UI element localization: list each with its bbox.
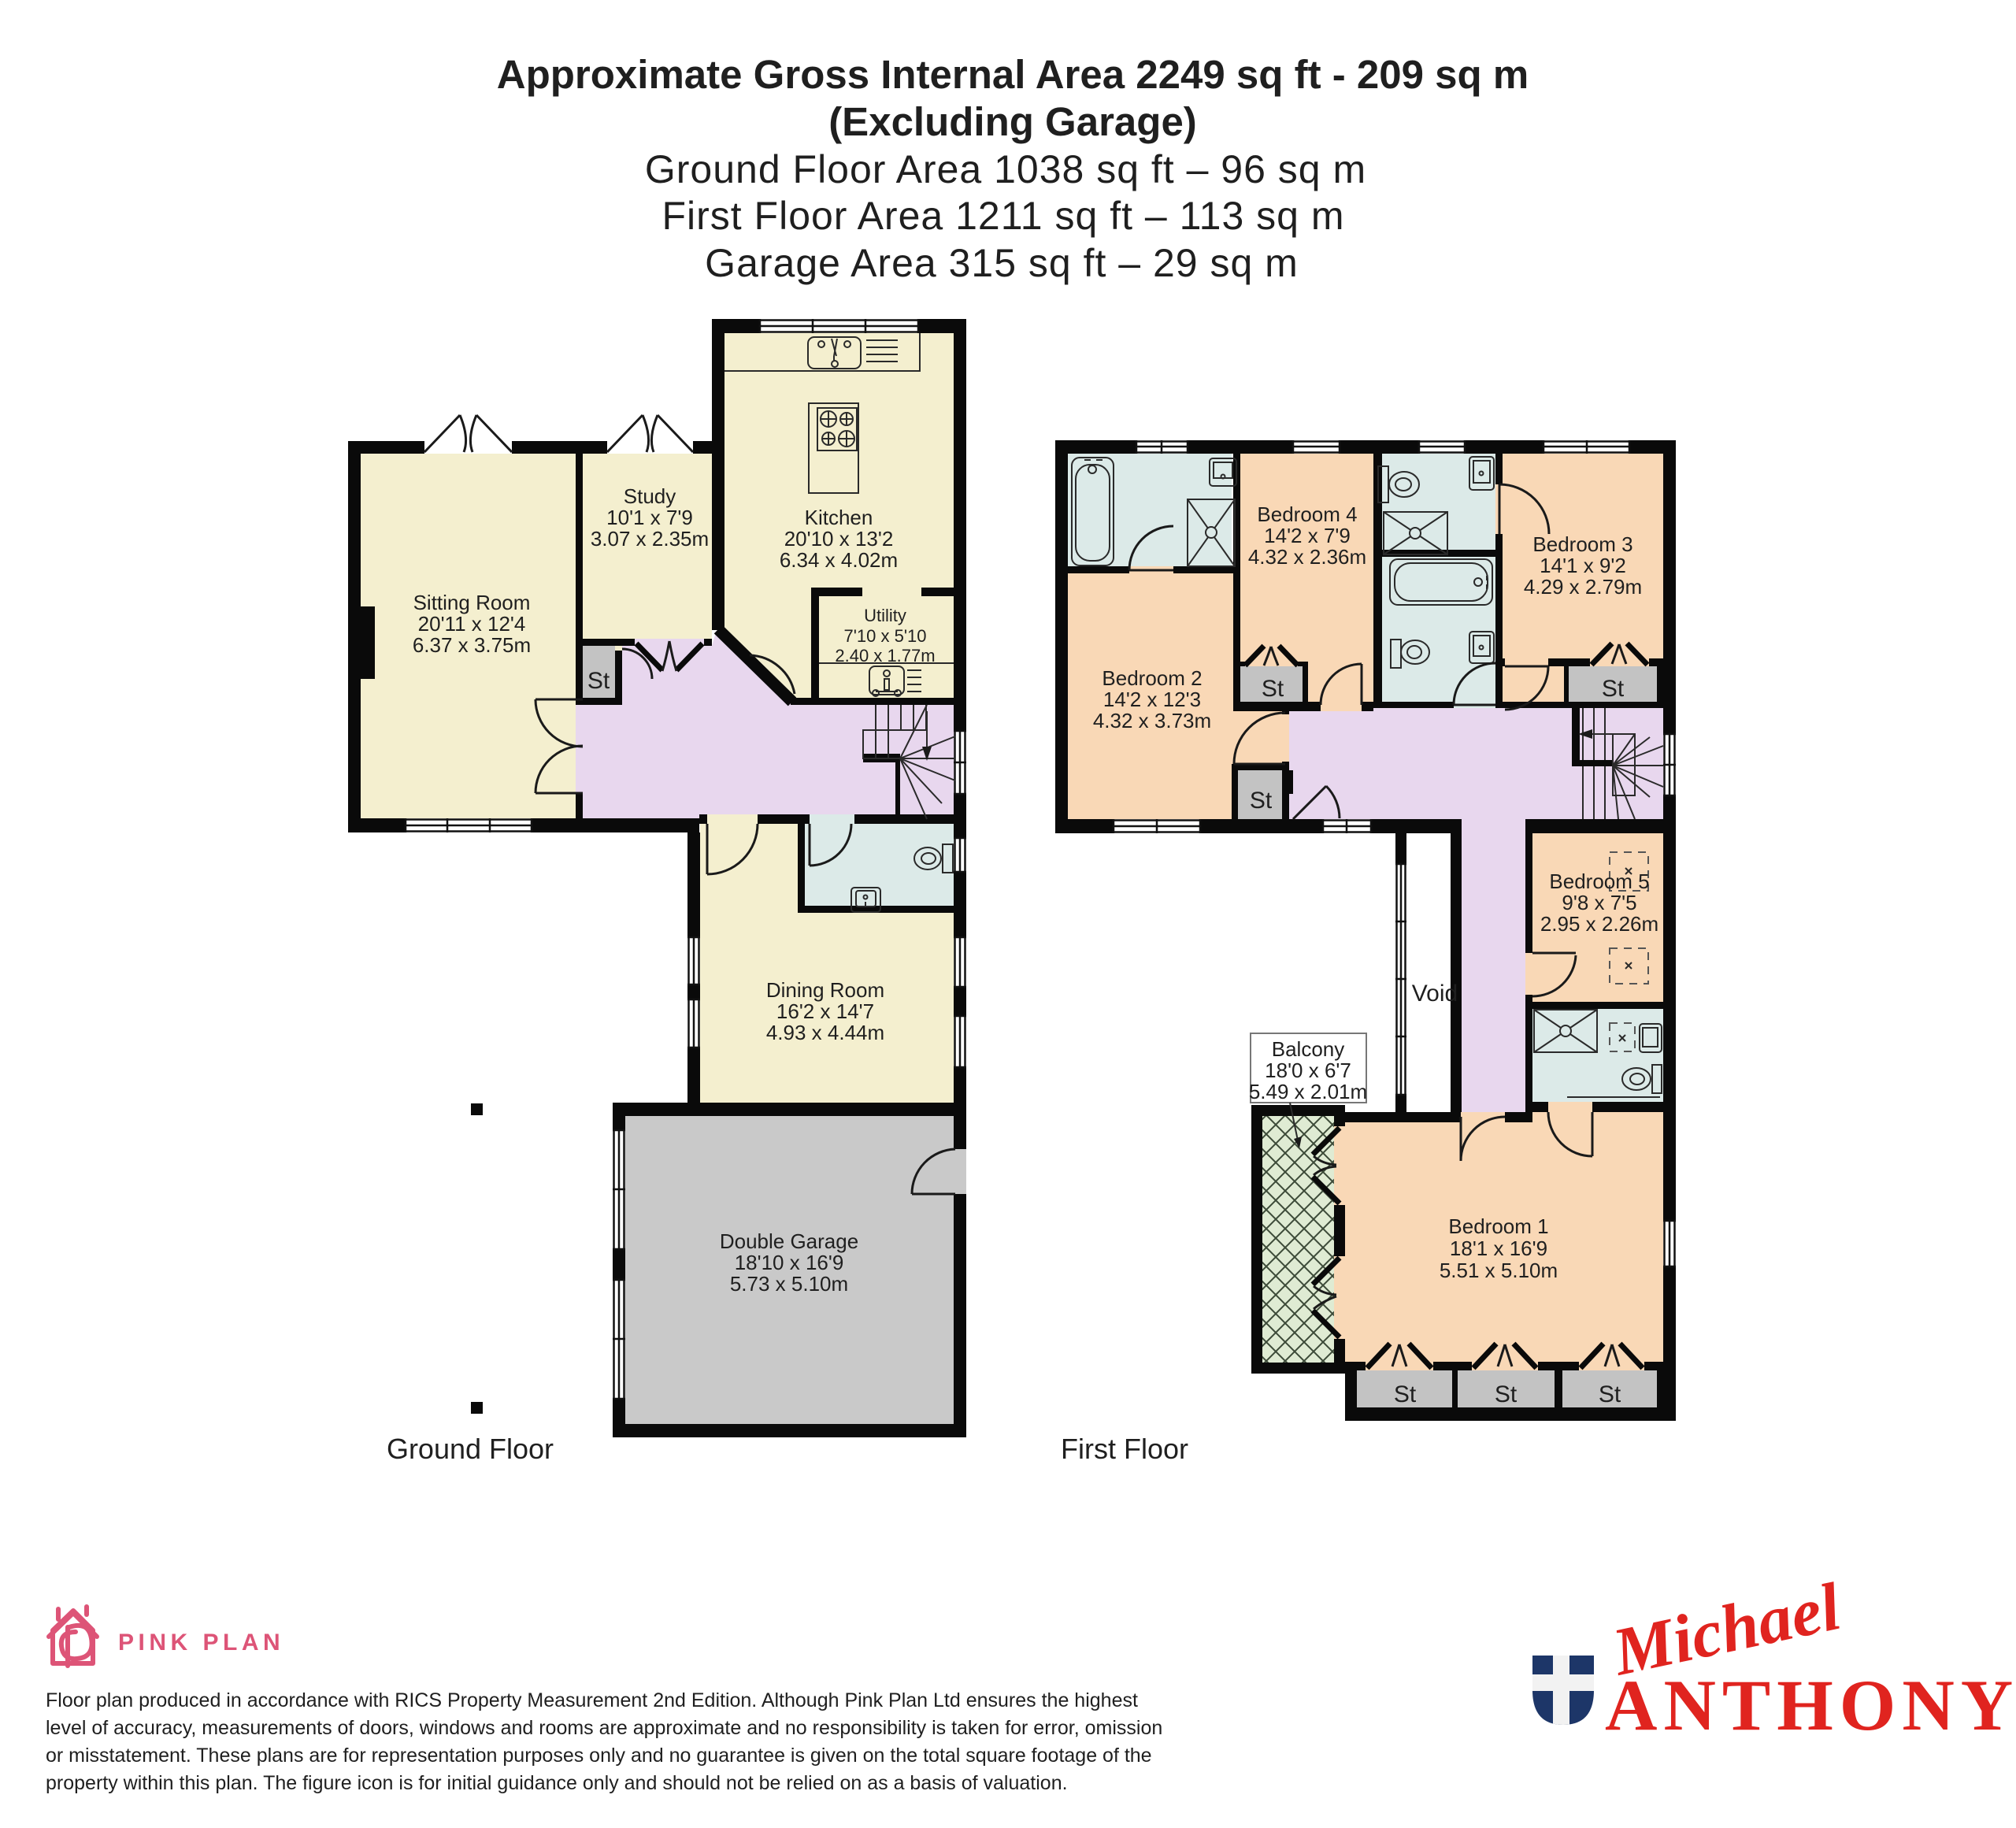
- svg-text:18'0 x 6'7: 18'0 x 6'7: [1265, 1059, 1351, 1082]
- svg-text:6.37 x 3.75m: 6.37 x 3.75m: [413, 633, 531, 657]
- svg-text:Bedroom 3: Bedroom 3: [1532, 532, 1632, 556]
- svg-text:14'2 x 7'9: 14'2 x 7'9: [1264, 524, 1351, 547]
- svg-text:property within this plan. The: property within this plan. The figure ic…: [46, 1772, 1068, 1794]
- svg-text:First Floor Area 1211 sq ft –: First Floor Area 1211 sq ft – 113 sq m: [661, 194, 1344, 238]
- svg-text:Bedroom 1: Bedroom 1: [1448, 1214, 1548, 1238]
- svg-text:2.40 x 1.77m: 2.40 x 1.77m: [835, 646, 935, 666]
- svg-text:16'2 x 14'7: 16'2 x 14'7: [776, 999, 874, 1023]
- svg-text:3.07 x 2.35m: 3.07 x 2.35m: [591, 527, 709, 551]
- svg-text:14'2 x 12'3: 14'2 x 12'3: [1103, 688, 1201, 711]
- svg-text:St: St: [1250, 788, 1273, 814]
- svg-text:5.49 x 2.01m: 5.49 x 2.01m: [1249, 1080, 1367, 1103]
- svg-text:Dining Room: Dining Room: [766, 978, 884, 1002]
- svg-text:Bedroom 4: Bedroom 4: [1257, 502, 1357, 526]
- svg-text:or misstatement. These plans a: or misstatement. These plans are for rep…: [46, 1745, 1152, 1767]
- svg-text:Ground Floor Area 1038 sq ft –: Ground Floor Area 1038 sq ft – 96 sq m: [645, 147, 1366, 191]
- svg-text:Double Garage: Double Garage: [720, 1229, 858, 1253]
- svg-text:St: St: [1599, 1381, 1621, 1407]
- svg-text:18'10 x 16'9: 18'10 x 16'9: [735, 1251, 844, 1274]
- svg-text:Bedroom 2: Bedroom 2: [1102, 666, 1202, 690]
- svg-text:9'8 x 7'5: 9'8 x 7'5: [1562, 891, 1636, 914]
- svg-text:Study: Study: [624, 484, 676, 508]
- svg-text:18'1 x 16'9: 18'1 x 16'9: [1450, 1237, 1547, 1260]
- svg-text:level of accuracy, measurement: level of accuracy, measurements of doors…: [46, 1717, 1162, 1739]
- svg-text:Garage Area 315 sq ft – 29 sq: Garage Area 315 sq ft – 29 sq m: [705, 241, 1299, 285]
- svg-text:St: St: [1495, 1381, 1518, 1407]
- svg-text:St: St: [1394, 1381, 1417, 1407]
- svg-text:St: St: [1262, 676, 1284, 702]
- svg-text:Sitting Room: Sitting Room: [413, 591, 531, 614]
- svg-text:PINK PLAN: PINK PLAN: [118, 1630, 284, 1656]
- svg-text:20'11 x 12'4: 20'11 x 12'4: [418, 612, 526, 636]
- svg-text:4.32 x 3.73m: 4.32 x 3.73m: [1093, 709, 1211, 732]
- svg-text:Approximate Gross Internal Are: Approximate Gross Internal Area 2249 sq …: [497, 52, 1529, 97]
- svg-text:Balcony: Balcony: [1272, 1037, 1345, 1061]
- svg-text:2.95 x 2.26m: 2.95 x 2.26m: [1540, 912, 1658, 936]
- svg-text:5.51 x 5.10m: 5.51 x 5.10m: [1440, 1259, 1558, 1282]
- svg-text:First Floor: First Floor: [1061, 1433, 1188, 1465]
- svg-text:4.32 x 2.36m: 4.32 x 2.36m: [1248, 545, 1366, 569]
- svg-text:Kitchen: Kitchen: [805, 506, 873, 529]
- svg-text:6.34 x 4.02m: 6.34 x 4.02m: [780, 548, 898, 572]
- svg-text:Ground Floor: Ground Floor: [387, 1433, 554, 1465]
- svg-text:St: St: [587, 668, 610, 694]
- svg-text:14'1 x 9'2: 14'1 x 9'2: [1540, 554, 1626, 577]
- svg-text:4.93 x 4.44m: 4.93 x 4.44m: [766, 1021, 884, 1044]
- svg-text:Floor plan produced in accorda: Floor plan produced in accordance with R…: [46, 1689, 1138, 1711]
- svg-text:Utility: Utility: [864, 606, 906, 625]
- svg-text:10'1 x 7'9: 10'1 x 7'9: [606, 506, 693, 529]
- svg-text:5.73 x 5.10m: 5.73 x 5.10m: [730, 1272, 848, 1296]
- svg-text:(Excluding Garage): (Excluding Garage): [828, 99, 1197, 144]
- svg-text:St: St: [1602, 676, 1625, 702]
- svg-text:7'10 x 5'10: 7'10 x 5'10: [843, 626, 926, 646]
- svg-text:4.29 x 2.79m: 4.29 x 2.79m: [1524, 575, 1642, 599]
- svg-text:ANTHONY: ANTHONY: [1605, 1665, 2016, 1745]
- svg-text:Bedroom 5: Bedroom 5: [1549, 870, 1649, 893]
- svg-text:Void: Void: [1412, 981, 1458, 1007]
- svg-text:20'10 x 13'2: 20'10 x 13'2: [784, 527, 894, 551]
